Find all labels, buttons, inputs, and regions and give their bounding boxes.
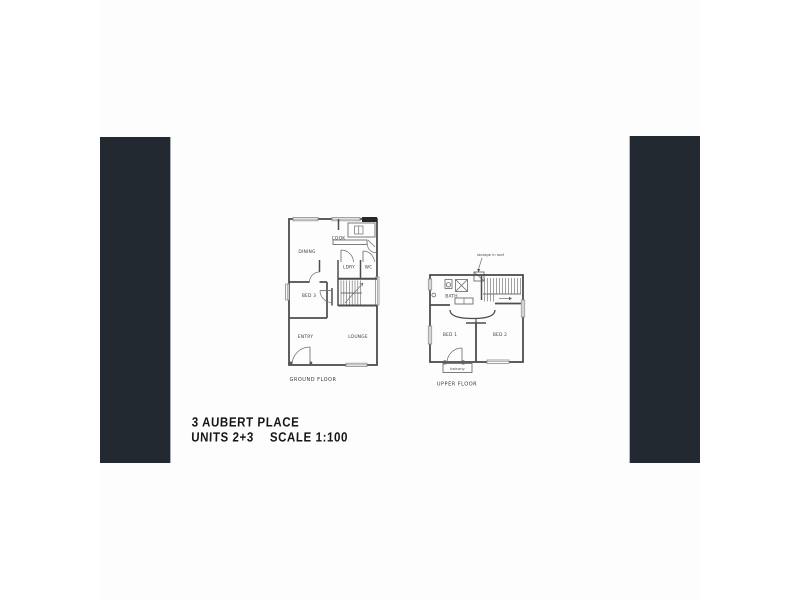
upper-floor-plan: storage in roof bbox=[425, 250, 535, 390]
ground-floor-caption: GROUND FLOOR bbox=[290, 377, 337, 383]
title-scale: SCALE 1:100 bbox=[270, 431, 349, 445]
title-units: UNITS 2+3 bbox=[191, 431, 254, 445]
floor-plan-sheet: COOK DINING LDRY WC BED 3 ENTRY LOUNGE G… bbox=[0, 0, 800, 600]
ground-black-block bbox=[362, 217, 377, 222]
label-bath: BATH bbox=[445, 294, 457, 300]
ground-stair-treads bbox=[341, 281, 363, 305]
scan-dark-bar-left bbox=[100, 137, 171, 463]
label-dining: DINING bbox=[298, 249, 316, 255]
scan-dark-bar-right bbox=[629, 136, 700, 463]
lounge-door bbox=[320, 288, 332, 306]
label-cook: COOK bbox=[332, 236, 346, 242]
label-entry: ENTRY bbox=[298, 334, 313, 340]
stair-landing bbox=[450, 298, 495, 323]
label-bed3: BED 3 bbox=[302, 293, 316, 299]
storage-annotation: storage in roof bbox=[477, 253, 505, 257]
scanned-page-background bbox=[100, 0, 700, 600]
storage-arrow bbox=[474, 258, 484, 281]
label-wc: WC bbox=[365, 265, 373, 271]
bed3-walls bbox=[289, 260, 327, 318]
label-balcony: balcony bbox=[450, 367, 465, 371]
title-address: 3 AUBERT PLACE bbox=[191, 416, 348, 431]
ground-floor-plan: COOK DINING LDRY WC BED 3 ENTRY LOUNGE G… bbox=[283, 214, 383, 384]
label-lounge: LOUNGE bbox=[348, 334, 368, 340]
entry-door bbox=[290, 347, 312, 366]
label-ldry: LDRY bbox=[343, 265, 355, 271]
title-units-scale: UNITS 2+3SCALE 1:100 bbox=[191, 431, 348, 446]
upper-stairs bbox=[483, 278, 523, 304]
hall-door-arcs bbox=[341, 250, 375, 262]
upper-floor-caption: UPPER FLOOR bbox=[437, 382, 477, 388]
title-block: 3 AUBERT PLACE UNITS 2+3SCALE 1:100 bbox=[191, 416, 349, 446]
label-bed2: BED 2 bbox=[493, 332, 507, 338]
label-bed1: BED 1 bbox=[443, 332, 457, 338]
